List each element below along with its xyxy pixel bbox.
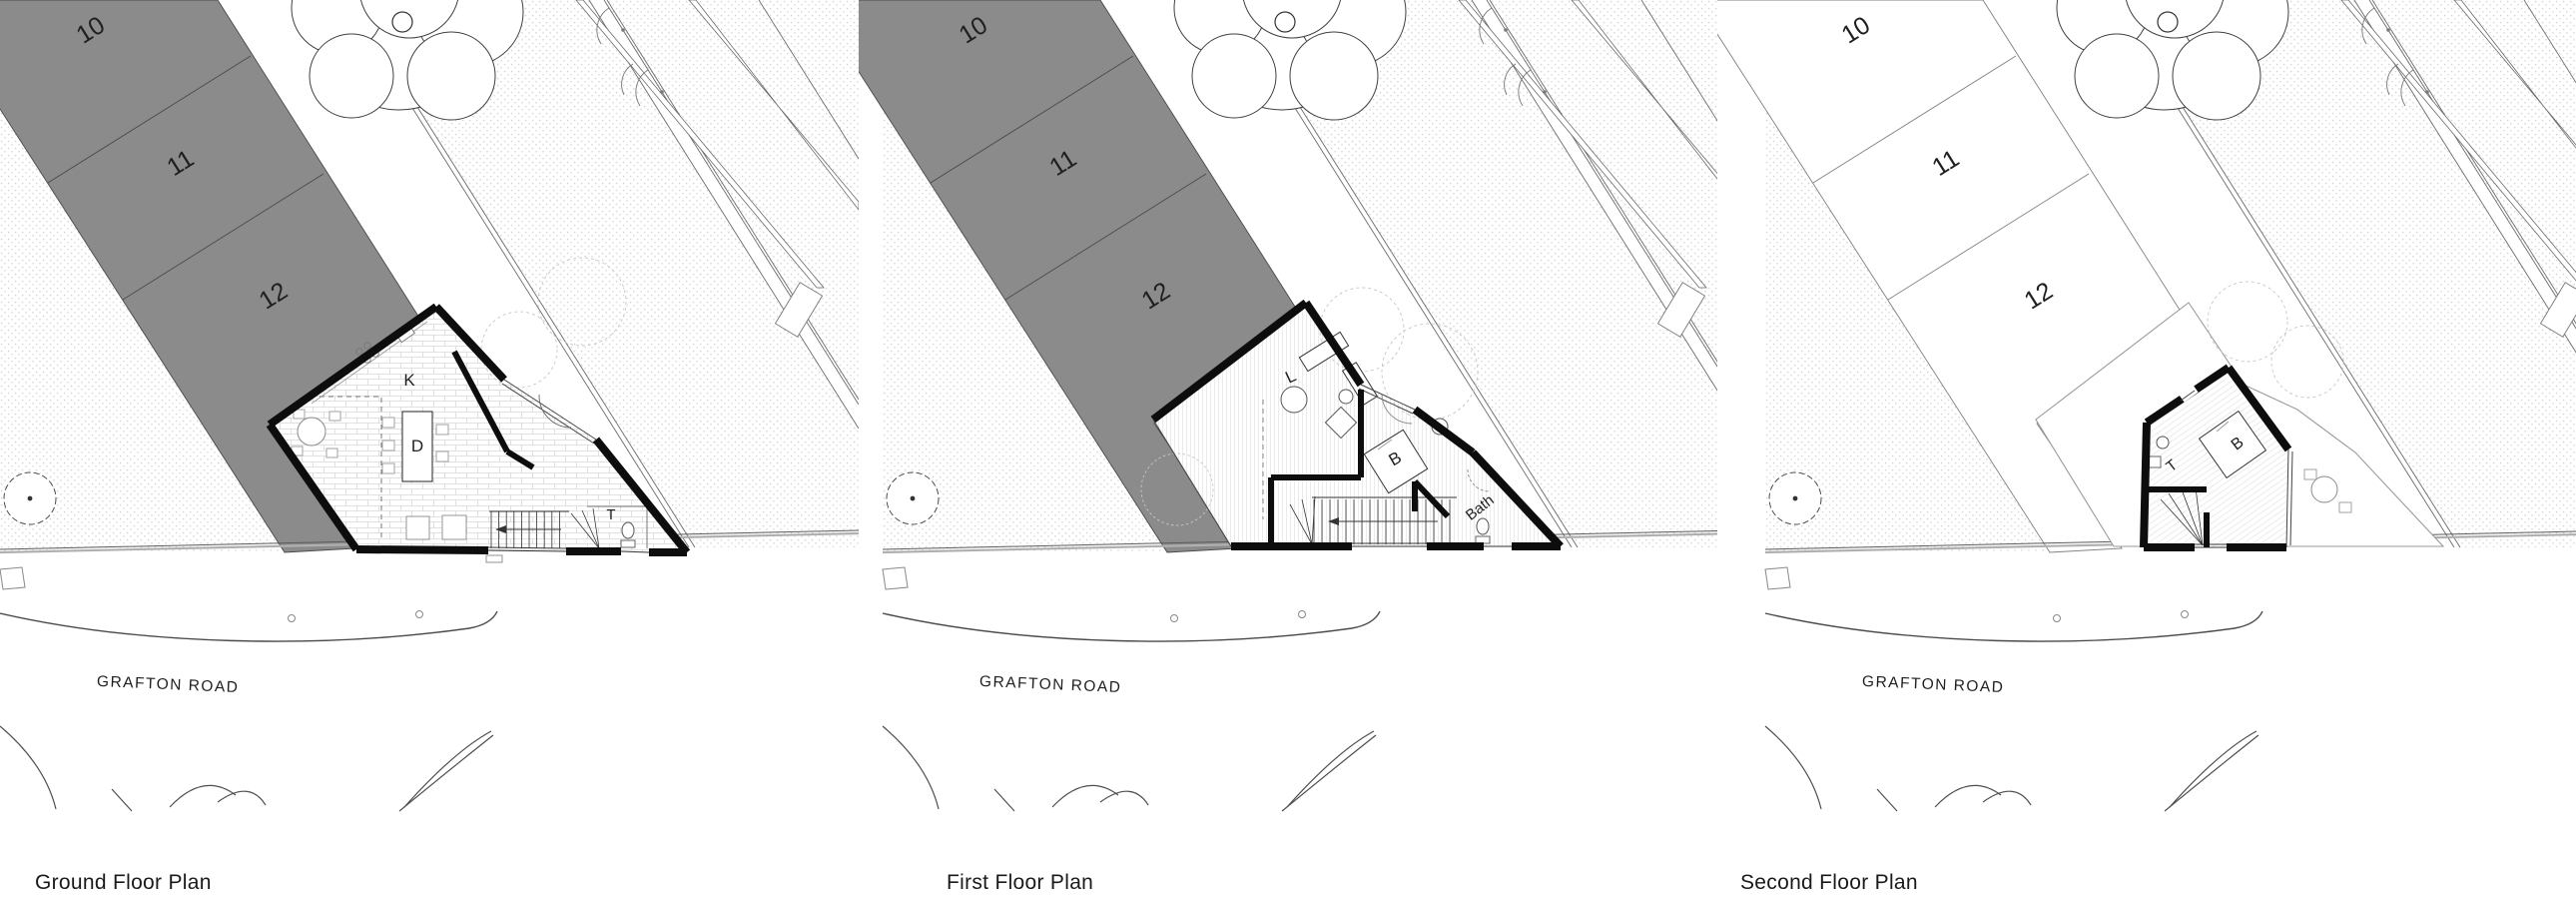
room-label-K: K <box>403 371 415 390</box>
panel-second-floor: 101112GRAFTON ROADTB Second Floor Plan <box>1717 0 2576 897</box>
floor-plan-title: First Floor Plan <box>947 871 1093 895</box>
shrub <box>4 472 56 524</box>
first-floor-drawing: 101112GRAFTON ROADLBBath <box>859 0 1717 897</box>
room-label-T: T <box>606 506 615 523</box>
floor-plan-title: Second Floor Plan <box>1740 871 1918 895</box>
shrub <box>887 472 939 524</box>
panel-ground-floor: 101112GRAFTON ROADKDT Ground Floor Plan <box>0 0 859 897</box>
second-floor-drawing: 101112GRAFTON ROADTB <box>1717 0 2576 897</box>
floor-plan-title: Ground Floor Plan <box>35 871 212 895</box>
site-plan: 101112GRAFTON ROADLBBath <box>859 0 1717 897</box>
drawing-sheet: 101112GRAFTON ROADKDT Ground Floor Plan … <box>0 0 2576 897</box>
site-plan: 101112GRAFTON ROADKDT <box>0 0 859 897</box>
shrub <box>1769 472 1821 524</box>
site-plan: 101112GRAFTON ROADTB <box>1717 0 2576 897</box>
room-label-D: D <box>411 437 423 455</box>
panel-first-floor: 101112GRAFTON ROADLBBath First Floor Pla… <box>859 0 1717 897</box>
ground-floor-drawing: 101112GRAFTON ROADKDT <box>0 0 859 897</box>
